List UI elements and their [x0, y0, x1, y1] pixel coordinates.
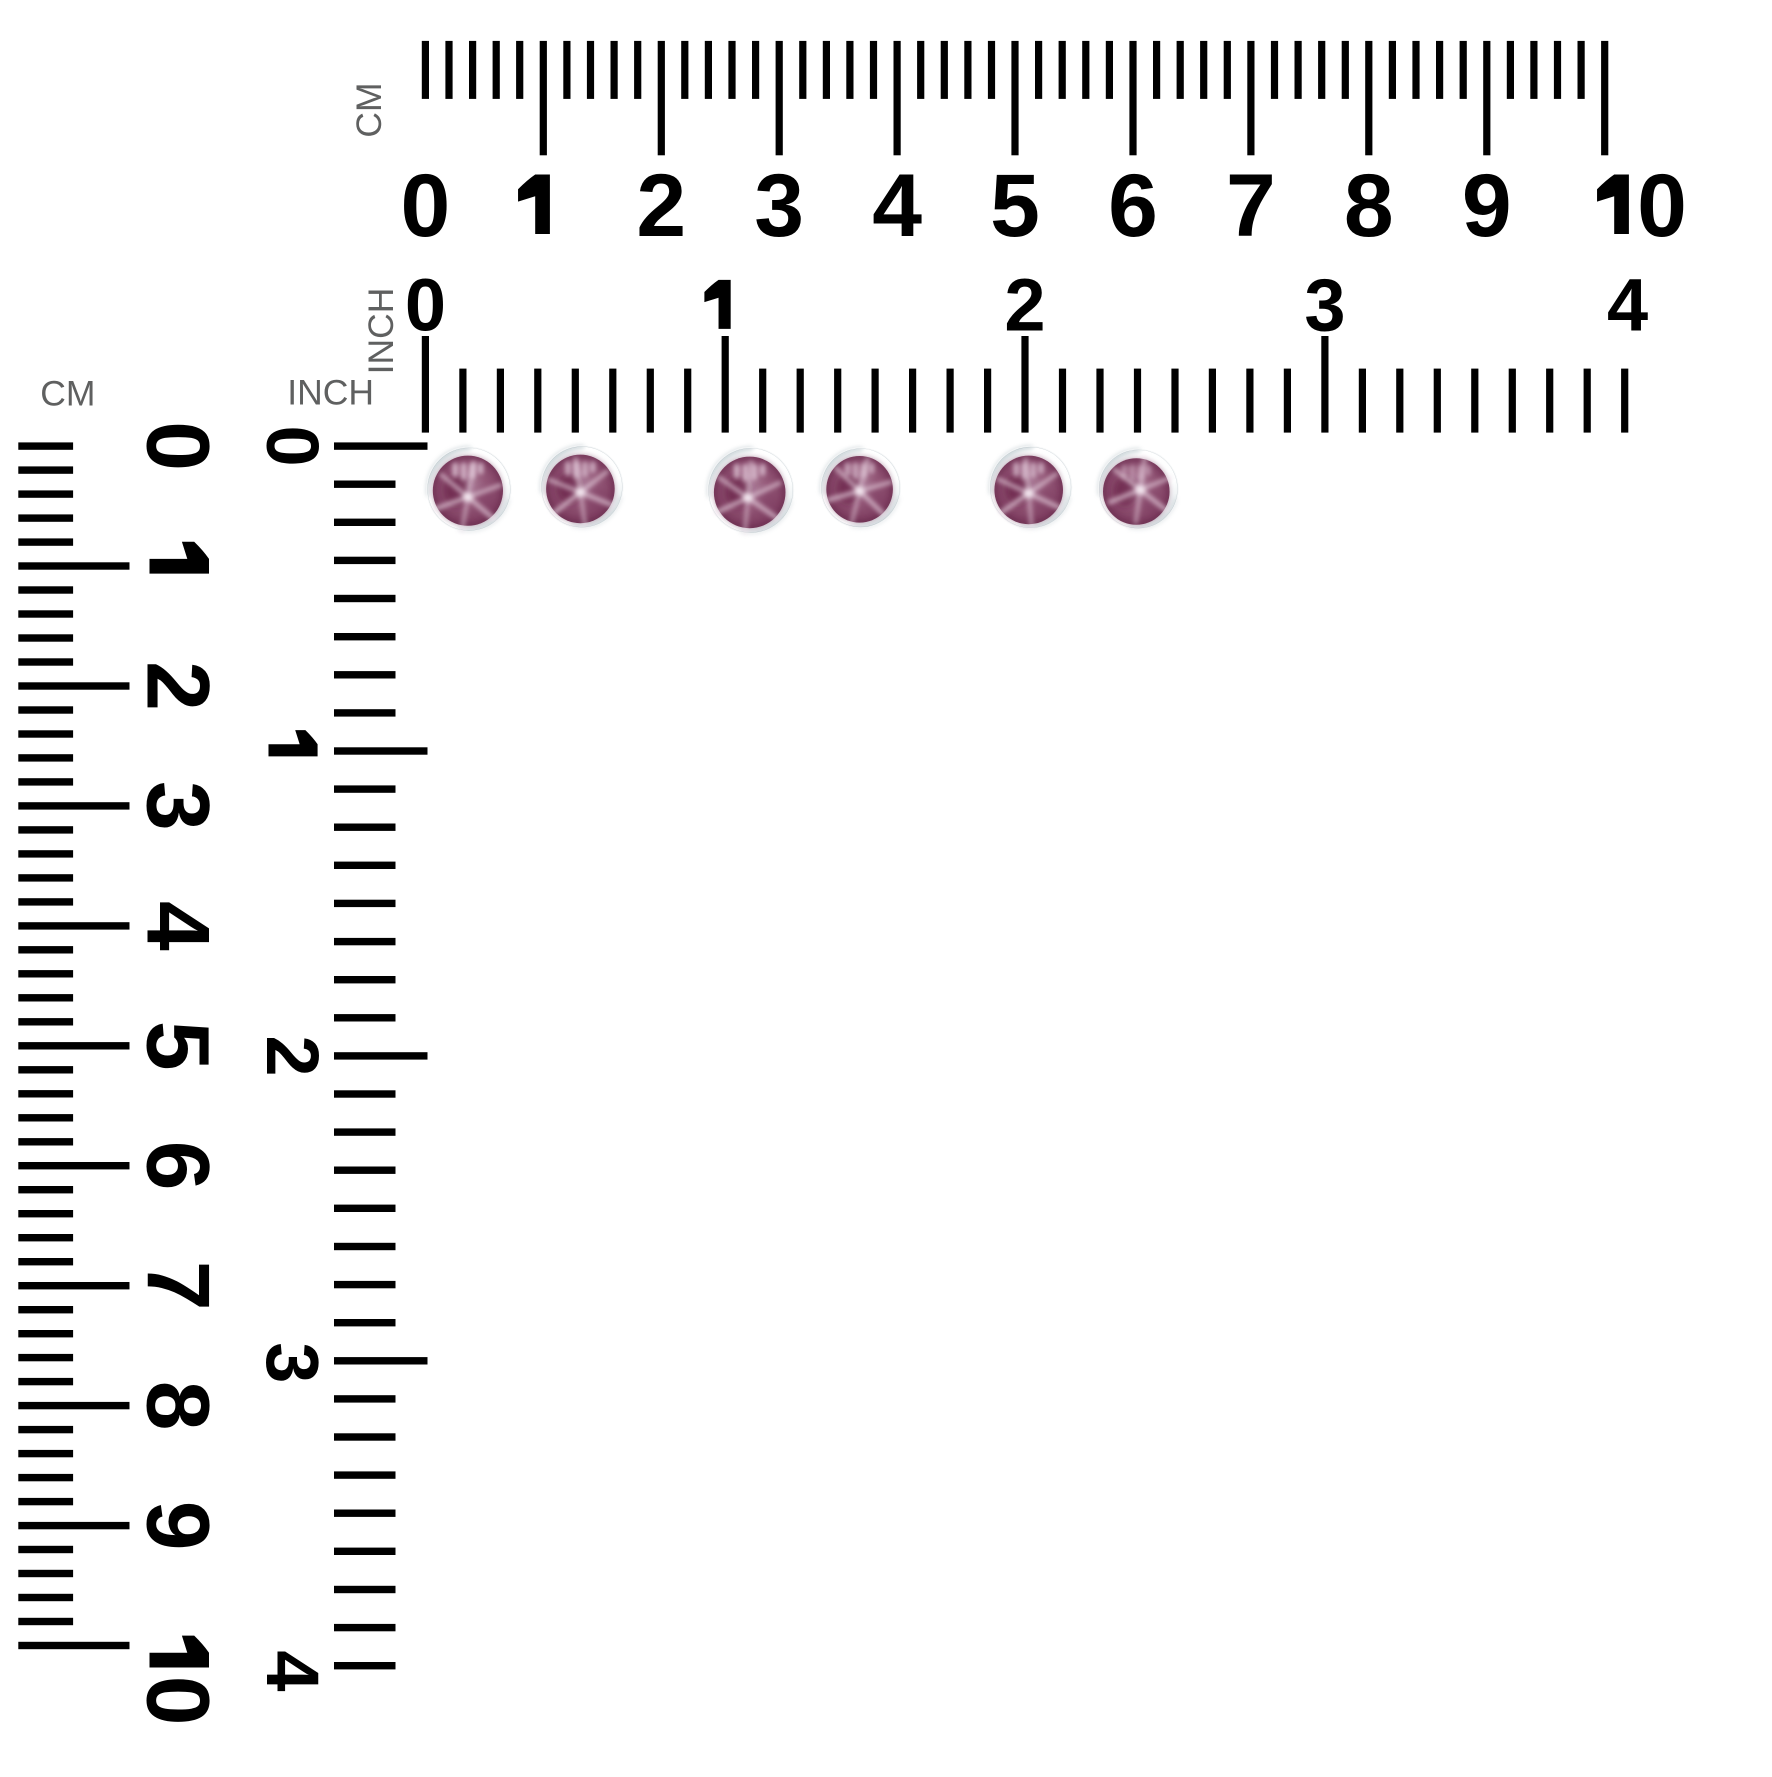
svg-text:INCH: INCH	[287, 373, 374, 413]
svg-text:2: 2	[636, 155, 686, 255]
svg-text:8: 8	[1344, 155, 1394, 255]
svg-text:0: 0	[1637, 155, 1687, 255]
svg-text:0: 0	[251, 426, 334, 467]
svg-text:3: 3	[129, 781, 229, 831]
svg-text:2: 2	[129, 661, 229, 711]
svg-text:2: 2	[251, 1035, 334, 1076]
svg-text:9: 9	[1462, 155, 1512, 255]
svg-text:5: 5	[990, 155, 1040, 255]
svg-text:4: 4	[129, 901, 229, 951]
svg-text:3: 3	[1304, 263, 1345, 346]
svg-text:0: 0	[405, 263, 446, 346]
svg-text:0: 0	[401, 155, 451, 255]
svg-text:CM: CM	[349, 82, 389, 137]
svg-text:0: 0	[129, 1676, 229, 1726]
svg-text:CM: CM	[40, 374, 95, 414]
svg-text:7: 7	[1226, 155, 1276, 255]
svg-text:3: 3	[251, 1342, 334, 1383]
svg-text:8: 8	[129, 1381, 229, 1431]
svg-text:5: 5	[129, 1021, 229, 1071]
svg-text:INCH: INCH	[361, 288, 401, 375]
svg-text:4: 4	[872, 155, 922, 255]
svg-text:4: 4	[251, 1650, 334, 1691]
svg-text:0: 0	[129, 421, 229, 471]
svg-text:6: 6	[1108, 155, 1158, 255]
svg-text:2: 2	[1004, 263, 1045, 346]
svg-text:9: 9	[129, 1501, 229, 1551]
svg-text:7: 7	[129, 1261, 229, 1311]
svg-text:4: 4	[1607, 263, 1648, 346]
svg-text:3: 3	[754, 155, 804, 255]
svg-text:6: 6	[129, 1141, 229, 1191]
